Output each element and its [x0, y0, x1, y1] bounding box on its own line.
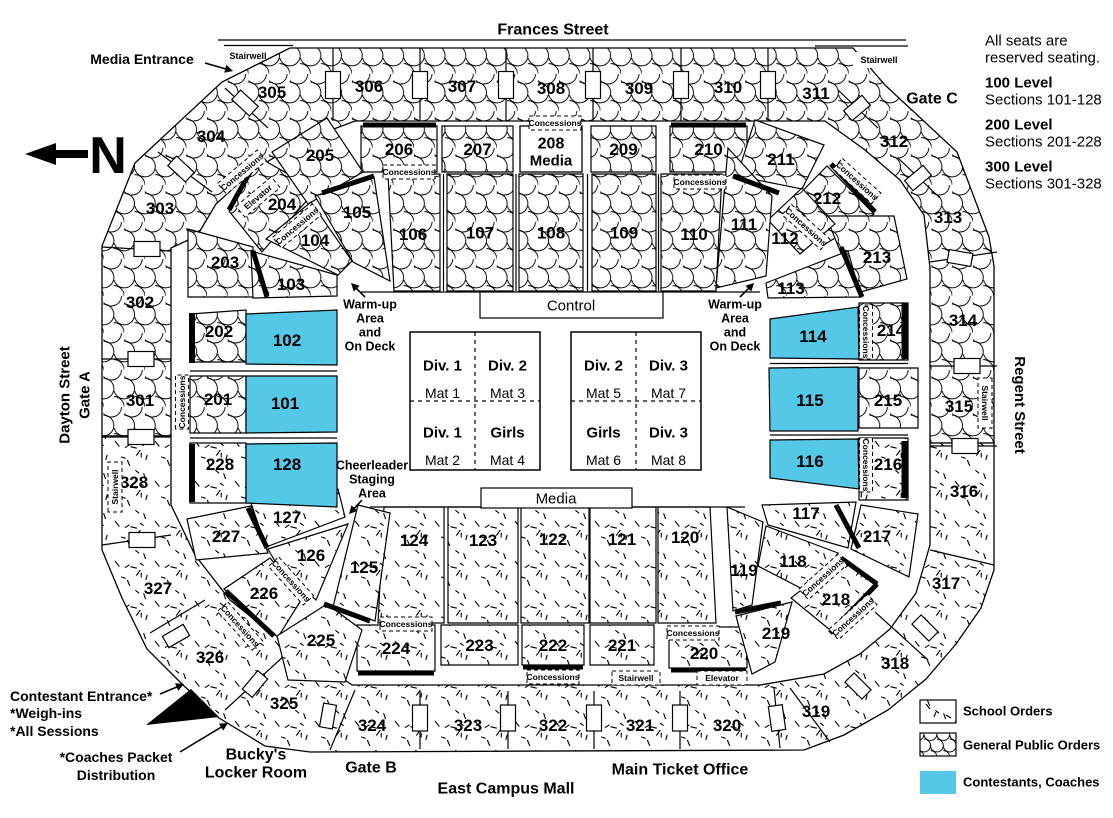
svg-text:120: 120 — [671, 528, 699, 547]
svg-text:Distribution: Distribution — [77, 767, 156, 783]
svg-text:319: 319 — [802, 702, 830, 721]
svg-text:Mat 4: Mat 4 — [490, 452, 525, 468]
svg-text:Dayton Street: Dayton Street — [56, 346, 73, 444]
svg-text:205: 205 — [306, 146, 334, 165]
svg-text:Gate B: Gate B — [345, 760, 397, 777]
svg-text:204: 204 — [268, 195, 297, 214]
svg-text:209: 209 — [609, 140, 637, 159]
svg-text:*Weigh-ins: *Weigh-ins — [10, 705, 82, 721]
svg-text:Locker Room: Locker Room — [205, 765, 307, 782]
svg-text:114: 114 — [799, 327, 827, 346]
svg-text:107: 107 — [466, 223, 494, 242]
svg-text:300 Level: 300 Level — [985, 158, 1053, 175]
svg-text:Div. 2: Div. 2 — [584, 357, 623, 374]
svg-text:309: 309 — [625, 79, 653, 98]
svg-text:Concessions: Concessions — [177, 375, 187, 428]
svg-text:Cheerleader: Cheerleader — [336, 458, 408, 472]
svg-text:Mat 8: Mat 8 — [651, 452, 686, 468]
svg-text:124: 124 — [400, 531, 429, 550]
svg-text:Warm-up: Warm-up — [343, 297, 397, 311]
svg-text:208: 208 — [538, 136, 565, 153]
svg-text:Mat 7: Mat 7 — [651, 385, 686, 401]
svg-text:Mat 6: Mat 6 — [586, 452, 621, 468]
svg-text:316: 316 — [950, 482, 978, 501]
svg-text:115: 115 — [796, 391, 823, 410]
svg-text:and: and — [724, 325, 746, 339]
svg-text:301: 301 — [126, 391, 154, 410]
svg-text:Main Ticket Office: Main Ticket Office — [612, 762, 749, 779]
svg-text:113: 113 — [777, 279, 804, 298]
svg-text:305: 305 — [258, 83, 286, 102]
svg-text:Staging: Staging — [349, 472, 395, 486]
svg-text:Concessions: Concessions — [674, 177, 727, 187]
svg-text:103: 103 — [277, 275, 305, 294]
svg-text:Concessions: Concessions — [667, 628, 720, 638]
svg-text:Area: Area — [721, 311, 750, 325]
svg-text:Div. 1: Div. 1 — [423, 357, 462, 374]
svg-text:227: 227 — [212, 527, 240, 546]
svg-text:127: 127 — [273, 508, 301, 527]
svg-text:Concessions: Concessions — [380, 619, 433, 629]
svg-text:Gate A: Gate A — [76, 371, 93, 419]
svg-text:Concessions: Concessions — [861, 306, 871, 359]
svg-text:327: 327 — [144, 579, 172, 598]
svg-text:203: 203 — [211, 253, 239, 272]
svg-text:217: 217 — [863, 527, 891, 546]
svg-text:312: 312 — [880, 132, 908, 151]
svg-text:Stairwell: Stairwell — [860, 55, 897, 65]
svg-text:Mat 2: Mat 2 — [425, 452, 460, 468]
svg-text:100 Level: 100 Level — [985, 74, 1053, 91]
svg-text:125: 125 — [350, 558, 378, 577]
svg-text:225: 225 — [307, 631, 335, 650]
svg-text:Mat 1: Mat 1 — [425, 385, 460, 401]
svg-text:101: 101 — [271, 394, 299, 413]
svg-text:328: 328 — [120, 473, 148, 492]
svg-text:Div. 2: Div. 2 — [488, 357, 527, 374]
svg-text:Stairwell: Stairwell — [110, 470, 120, 505]
svg-text:Media Entrance: Media Entrance — [90, 51, 194, 67]
svg-text:222: 222 — [539, 636, 567, 655]
svg-text:Area: Area — [358, 486, 387, 500]
svg-text:*All Sessions: *All Sessions — [10, 723, 99, 739]
svg-text:reserved seating.: reserved seating. — [985, 49, 1100, 66]
svg-text:325: 325 — [270, 694, 298, 713]
svg-text:121: 121 — [608, 530, 636, 549]
svg-text:Regent Street: Regent Street — [1011, 356, 1028, 454]
svg-text:228: 228 — [206, 455, 234, 474]
svg-text:326: 326 — [196, 648, 224, 667]
svg-text:315: 315 — [945, 397, 973, 416]
svg-text:Sections 301-328: Sections 301-328 — [985, 175, 1102, 192]
svg-text:Div. 1: Div. 1 — [423, 424, 462, 441]
svg-text:122: 122 — [539, 530, 567, 549]
svg-text:223: 223 — [465, 636, 493, 655]
svg-text:321: 321 — [626, 716, 654, 735]
svg-text:202: 202 — [205, 322, 233, 341]
svg-text:and: and — [359, 325, 381, 339]
svg-text:206: 206 — [385, 140, 413, 159]
svg-text:Bucky's: Bucky's — [226, 747, 287, 764]
svg-text:Concessions: Concessions — [529, 118, 582, 128]
svg-text:224: 224 — [382, 639, 411, 658]
svg-text:*Coaches Packet: *Coaches Packet — [60, 749, 173, 765]
svg-text:310: 310 — [714, 78, 742, 97]
svg-text:Warm-up: Warm-up — [708, 297, 762, 311]
svg-text:Gate C: Gate C — [906, 91, 958, 108]
svg-text:303: 303 — [146, 199, 174, 218]
svg-text:311: 311 — [802, 84, 829, 103]
svg-text:201: 201 — [204, 390, 232, 409]
svg-text:317: 317 — [932, 574, 960, 593]
svg-text:118: 118 — [779, 552, 806, 571]
svg-text:324: 324 — [358, 716, 387, 735]
svg-text:Concessions: Concessions — [527, 672, 580, 682]
svg-text:104: 104 — [301, 231, 330, 250]
svg-text:306: 306 — [355, 77, 383, 96]
svg-text:211: 211 — [767, 150, 794, 169]
svg-text:108: 108 — [537, 223, 565, 242]
svg-text:210: 210 — [694, 140, 722, 159]
svg-text:Mat 3: Mat 3 — [490, 385, 525, 401]
svg-text:109: 109 — [610, 223, 638, 242]
svg-text:Contestants, Coaches: Contestants, Coaches — [963, 775, 1100, 790]
svg-text:106: 106 — [399, 225, 427, 244]
svg-text:116: 116 — [796, 452, 823, 471]
svg-text:East Campus Mall: East Campus Mall — [438, 781, 575, 798]
svg-text:226: 226 — [250, 584, 278, 603]
svg-text:Media: Media — [530, 152, 573, 169]
svg-text:Stairwell: Stairwell — [619, 673, 654, 683]
svg-text:Div. 3: Div. 3 — [649, 424, 688, 441]
svg-text:Mat 5: Mat 5 — [586, 385, 621, 401]
svg-text:128: 128 — [273, 455, 301, 474]
svg-text:219: 219 — [762, 624, 790, 643]
svg-text:110: 110 — [680, 225, 707, 244]
svg-text:Sections 201-228: Sections 201-228 — [985, 133, 1102, 150]
svg-text:Frances Street: Frances Street — [497, 22, 609, 39]
svg-text:119: 119 — [730, 561, 757, 580]
svg-text:All seats are: All seats are — [985, 32, 1068, 49]
svg-text:General Public Orders: General Public Orders — [963, 738, 1100, 753]
svg-text:207: 207 — [463, 140, 491, 159]
svg-text:Stairwell: Stairwell — [229, 51, 266, 61]
svg-text:Concessions: Concessions — [861, 439, 871, 492]
svg-text:304: 304 — [197, 127, 226, 146]
svg-text:215: 215 — [874, 391, 902, 410]
svg-text:Area: Area — [356, 311, 385, 325]
svg-text:126: 126 — [297, 546, 325, 565]
svg-text:Girls: Girls — [586, 424, 620, 441]
svg-text:Control: Control — [547, 297, 595, 314]
svg-text:213: 213 — [863, 248, 891, 267]
svg-text:123: 123 — [469, 531, 497, 550]
svg-text:Girls: Girls — [490, 424, 524, 441]
svg-text:307: 307 — [448, 77, 476, 96]
svg-text:313: 313 — [934, 208, 962, 227]
svg-text:N: N — [89, 127, 127, 185]
svg-text:On Deck: On Deck — [345, 339, 396, 353]
svg-text:216: 216 — [874, 455, 902, 474]
svg-text:112: 112 — [771, 229, 798, 248]
svg-text:221: 221 — [608, 636, 636, 655]
svg-text:Contestant Entrance*: Contestant Entrance* — [10, 688, 153, 704]
svg-text:Concessions: Concessions — [383, 167, 436, 177]
svg-text:322: 322 — [539, 716, 567, 735]
svg-text:220: 220 — [690, 644, 718, 663]
svg-text:218: 218 — [822, 590, 850, 609]
svg-text:320: 320 — [713, 716, 741, 735]
svg-text:314: 314 — [949, 311, 978, 330]
svg-text:Stairwell: Stairwell — [980, 386, 990, 421]
svg-text:On Deck: On Deck — [710, 339, 761, 353]
svg-text:214: 214 — [877, 321, 906, 340]
svg-text:323: 323 — [454, 716, 482, 735]
svg-text:102: 102 — [273, 331, 301, 350]
svg-text:117: 117 — [792, 504, 819, 523]
svg-text:302: 302 — [126, 293, 154, 312]
svg-text:Elevator: Elevator — [705, 673, 739, 683]
svg-text:Media: Media — [536, 490, 578, 507]
svg-text:Sections 101-128: Sections 101-128 — [985, 91, 1102, 108]
svg-text:308: 308 — [537, 79, 565, 98]
svg-text:200 Level: 200 Level — [985, 116, 1053, 133]
svg-text:318: 318 — [881, 654, 909, 673]
svg-text:School Orders: School Orders — [963, 704, 1053, 719]
svg-text:111: 111 — [731, 215, 758, 234]
svg-text:105: 105 — [343, 203, 371, 222]
svg-text:Div. 3: Div. 3 — [649, 357, 688, 374]
